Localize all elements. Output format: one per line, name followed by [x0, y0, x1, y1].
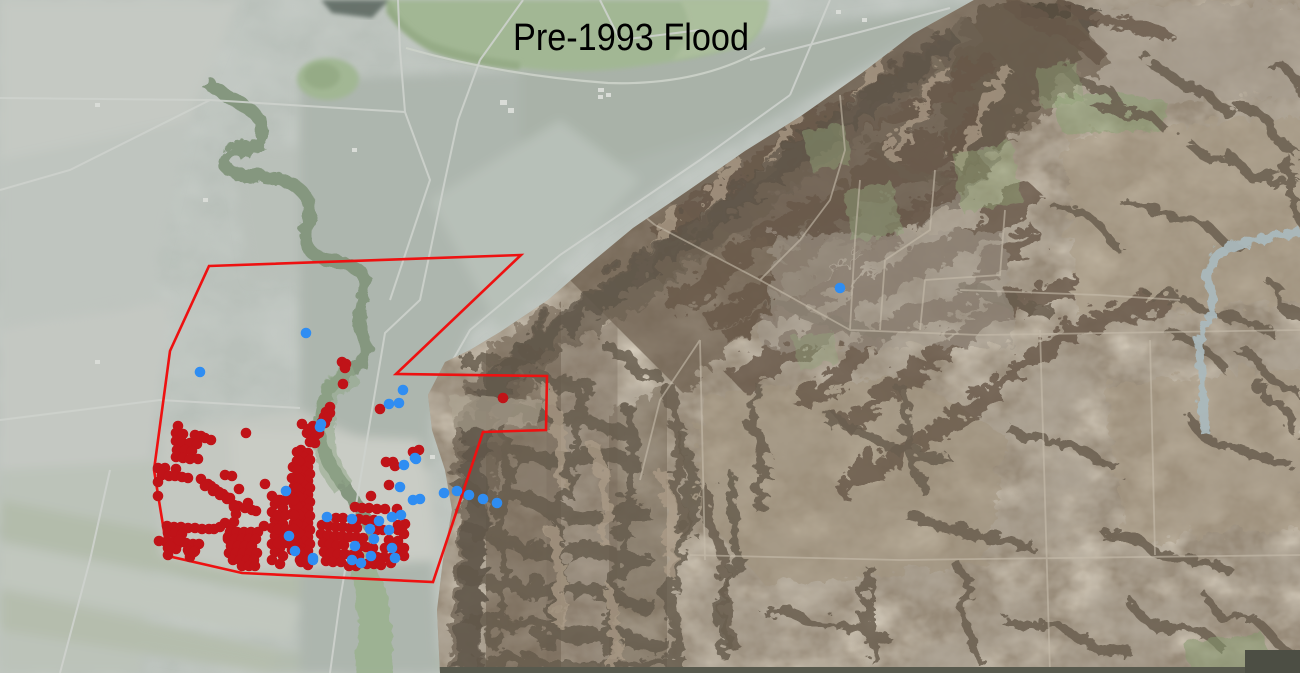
svg-text:Pre-1993 Flood: Pre-1993 Flood [513, 17, 749, 59]
